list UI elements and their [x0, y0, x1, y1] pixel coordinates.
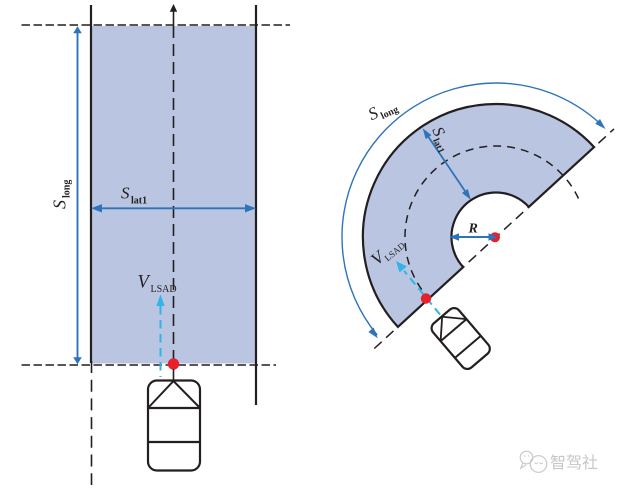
svg-text:lat1: lat1 [131, 196, 147, 207]
svg-text:S: S [121, 184, 130, 203]
svg-text:LSAD: LSAD [151, 284, 177, 295]
svg-text:R: R [468, 222, 478, 237]
svg-text:S: S [50, 200, 70, 209]
svg-text:long: long [62, 180, 73, 198]
svg-text:智驾社: 智驾社 [550, 454, 598, 472]
